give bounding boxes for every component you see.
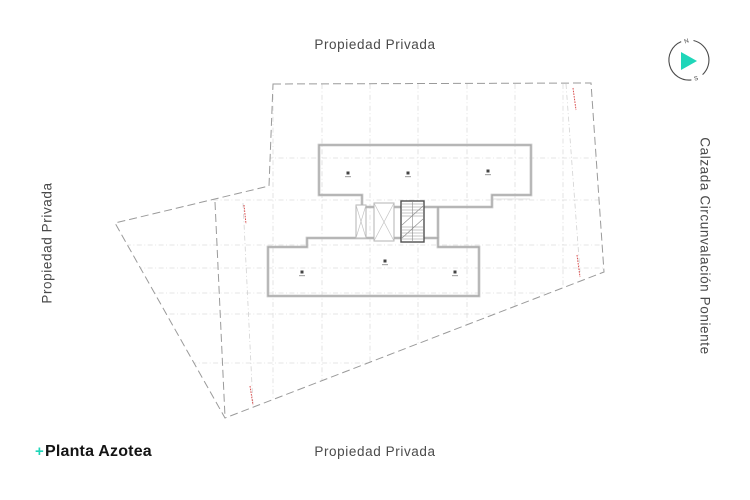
building-walls	[268, 145, 531, 296]
roof-drain-icon	[382, 260, 388, 266]
north-arrow-icon	[681, 52, 697, 70]
roof-drain-icon	[452, 271, 458, 277]
stair-core-icon	[401, 201, 424, 242]
grid-lines	[115, 84, 604, 418]
roof-drain-icon	[485, 170, 491, 176]
elevator-shaft-icon	[374, 203, 394, 241]
interior-lot-line	[215, 202, 225, 417]
roof-drain-icons	[299, 170, 491, 277]
roof-drain-icon	[299, 271, 305, 277]
label-calzada-circunvalacion-poniente: Calzada Circunvalación Poniente	[698, 137, 713, 354]
label-propiedad-privada-top: Propiedad Privada	[0, 37, 750, 52]
plan-sheet: N S Propiedad Privada Propiedad Privada …	[0, 0, 750, 500]
service-shaft-icon	[356, 205, 366, 238]
floor-plan-drawing: N S	[0, 0, 750, 500]
roof-drain-icon	[345, 172, 351, 178]
compass-south-label: S	[694, 76, 699, 83]
sheet-title: +Planta Azotea	[35, 443, 152, 461]
property-boundary	[115, 83, 604, 418]
label-propiedad-privada-left: Propiedad Privada	[40, 182, 55, 303]
plus-icon: +	[35, 443, 44, 460]
roof-drain-icon	[405, 172, 411, 178]
sheet-title-text: Planta Azotea	[45, 443, 152, 460]
